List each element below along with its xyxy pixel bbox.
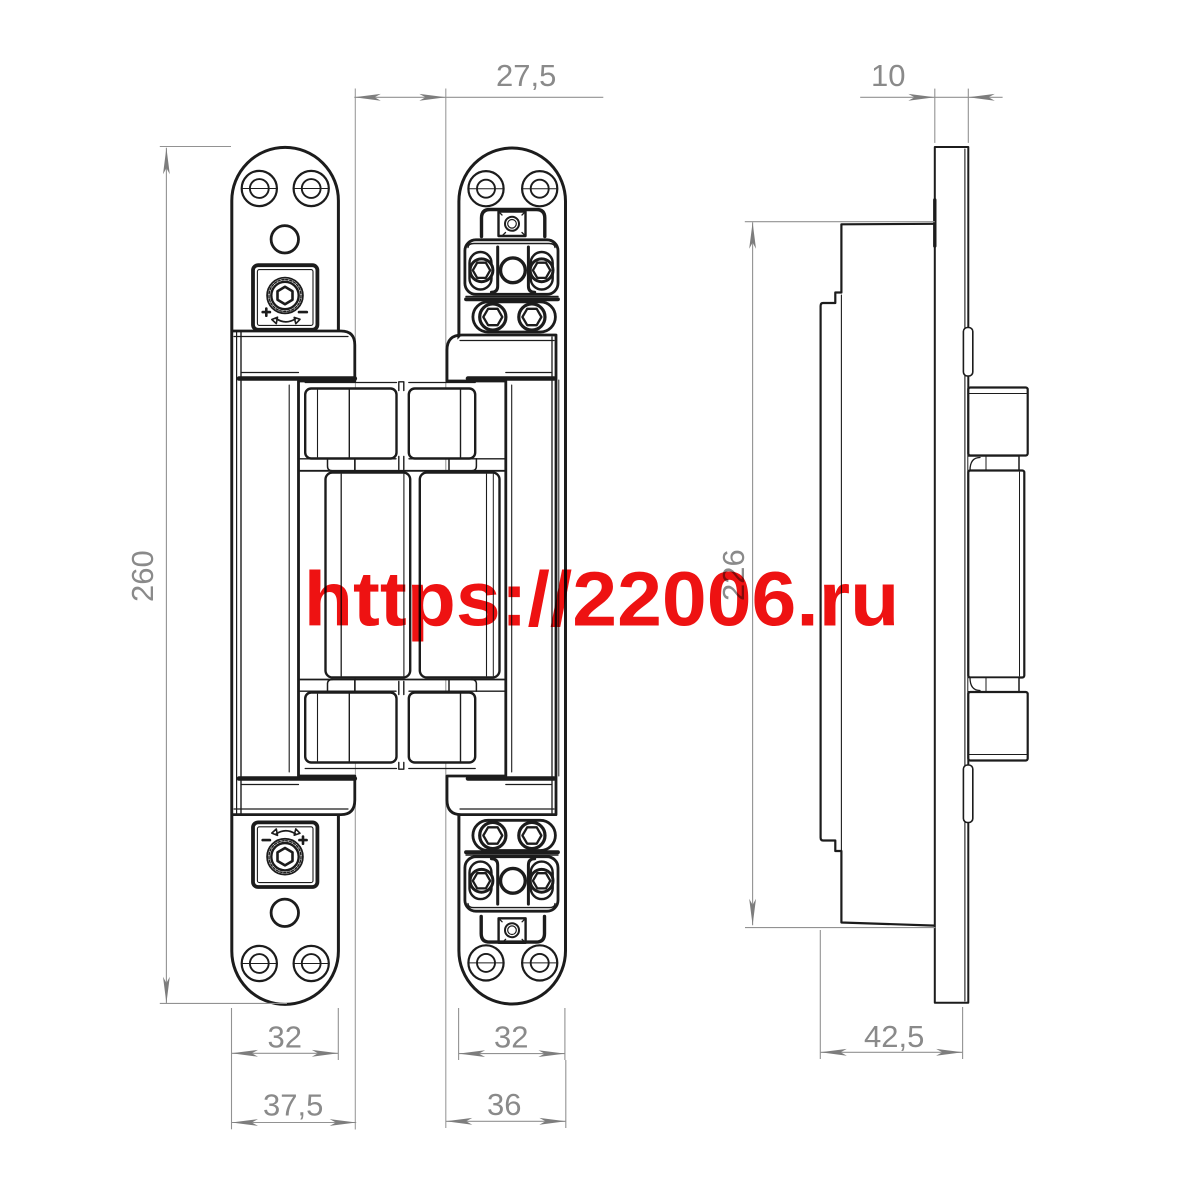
svg-text:32: 32 <box>494 1020 528 1055</box>
svg-text:https://22006.ru: https://22006.ru <box>304 556 900 642</box>
svg-text:36: 36 <box>487 1087 521 1122</box>
svg-text:27,5: 27,5 <box>496 58 556 93</box>
svg-text:42,5: 42,5 <box>864 1019 924 1054</box>
svg-text:10: 10 <box>871 58 905 93</box>
svg-text:37,5: 37,5 <box>263 1088 323 1123</box>
svg-text:32: 32 <box>268 1020 302 1055</box>
svg-text:260: 260 <box>125 550 160 602</box>
